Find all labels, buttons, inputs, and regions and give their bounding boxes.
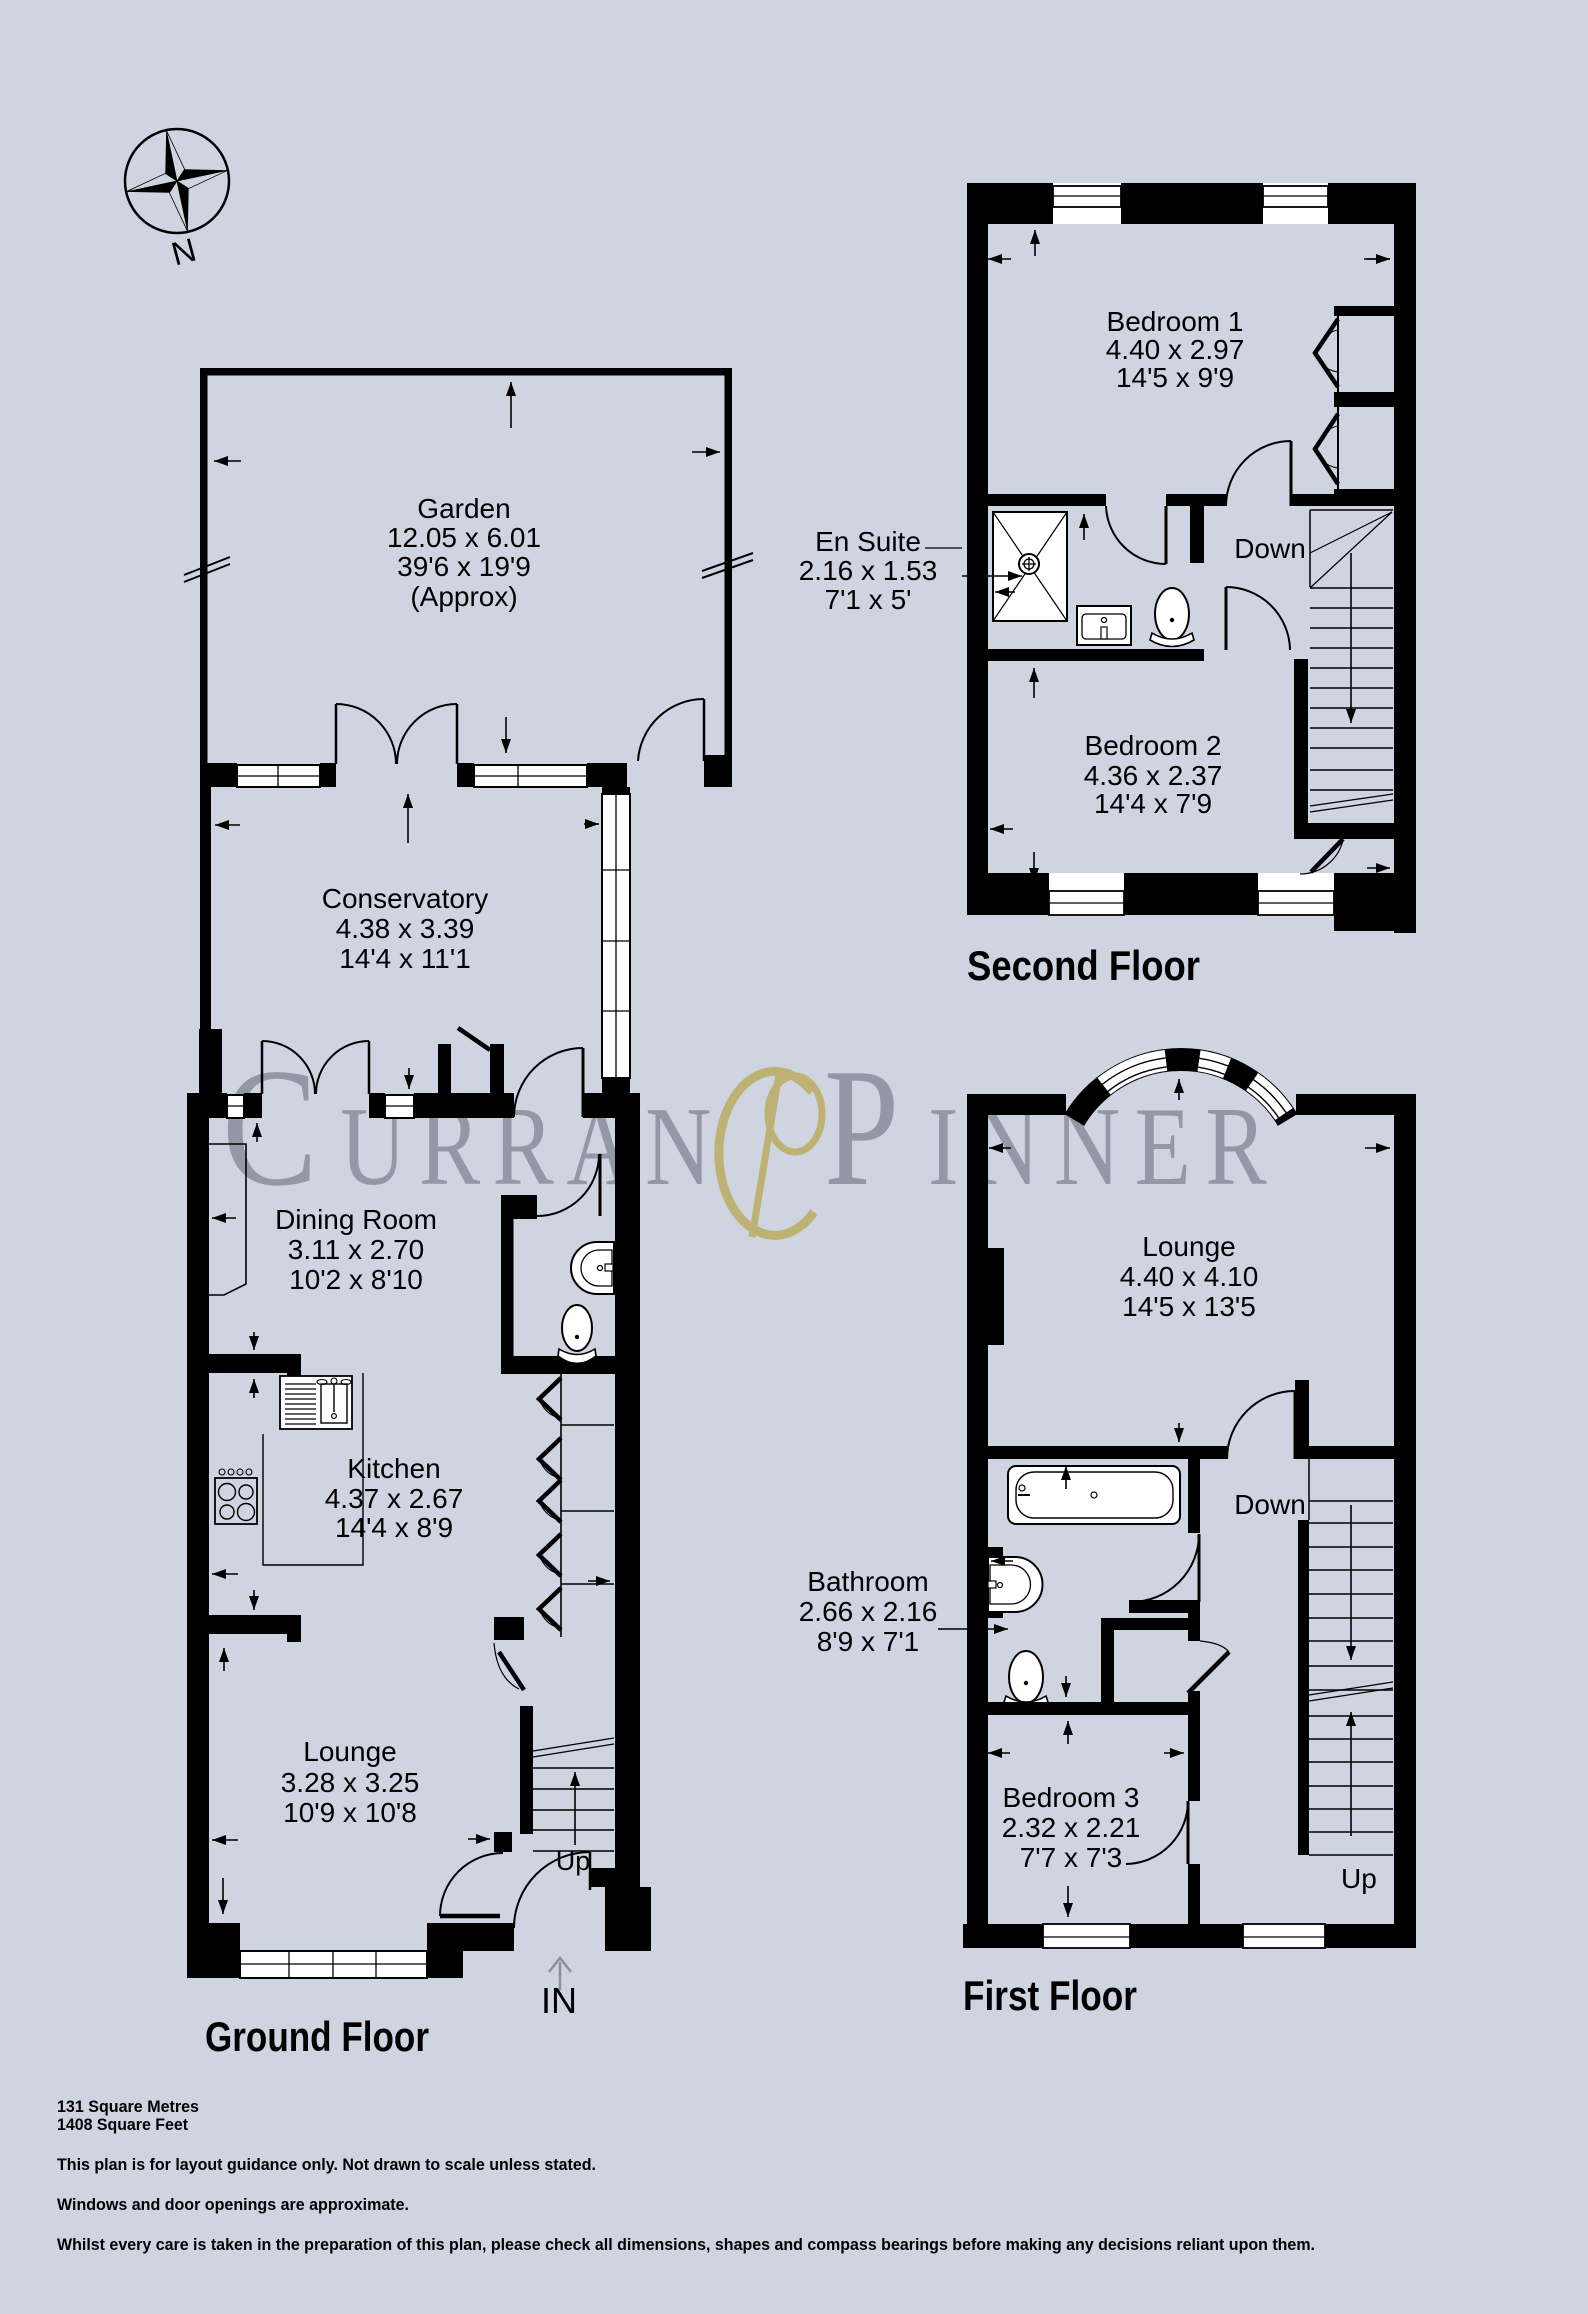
svg-text:Bedroom 2: Bedroom 2 [1085,730,1222,761]
svg-text:2.32 x 2.21: 2.32 x 2.21 [1002,1812,1141,1843]
svg-text:Ground Floor: Ground Floor [205,2013,429,2060]
svg-text:14'4 x 7'9: 14'4 x 7'9 [1094,788,1212,819]
svg-text:10'2 x 8'10: 10'2 x 8'10 [289,1264,423,1295]
svg-text:39'6 x 19'9: 39'6 x 19'9 [397,551,531,582]
svg-text:12.05 x 6.01: 12.05 x 6.01 [387,522,541,553]
svg-text:First Floor: First Floor [963,1972,1137,2019]
svg-text:7'1 x 5': 7'1 x 5' [825,584,912,615]
svg-text:Kitchen: Kitchen [347,1453,440,1484]
svg-text:P: P [824,1035,899,1222]
svg-text:Garden: Garden [417,493,510,524]
svg-text:8'9 x 7'1: 8'9 x 7'1 [817,1626,920,1657]
svg-text:Dining Room: Dining Room [275,1204,437,1235]
svg-text:4.36 x 2.37: 4.36 x 2.37 [1084,760,1223,791]
svg-text:Bedroom 3: Bedroom 3 [1003,1782,1140,1813]
svg-text:2.66 x 2.16: 2.66 x 2.16 [799,1596,938,1627]
svg-text:14'5 x 9'9: 14'5 x 9'9 [1116,362,1234,393]
svg-text:14'5 x 13'5: 14'5 x 13'5 [1122,1291,1256,1322]
svg-text:7'7 x 7'3: 7'7 x 7'3 [1020,1842,1123,1873]
svg-text:Up: Up [1341,1863,1377,1894]
svg-text:Lounge: Lounge [1142,1231,1235,1262]
svg-text:1408 Square Feet: 1408 Square Feet [57,2115,188,2134]
svg-text:2.16 x 1.53: 2.16 x 1.53 [799,555,938,586]
svg-text:4.40 x 2.97: 4.40 x 2.97 [1106,334,1245,365]
svg-text:Bathroom: Bathroom [807,1566,928,1597]
svg-text:Down: Down [1234,533,1306,564]
svg-text:131 Square Metres: 131 Square Metres [57,2097,199,2116]
svg-text:Second Floor: Second Floor [967,942,1200,989]
svg-text:10'9 x 10'8: 10'9 x 10'8 [283,1797,417,1828]
svg-text:14'4 x 8'9: 14'4 x 8'9 [335,1512,453,1543]
svg-text:Windows and door openings are: Windows and door openings are approximat… [57,2195,409,2214]
svg-text:4.38 x 3.39: 4.38 x 3.39 [336,913,475,944]
svg-text:IN: IN [541,1980,577,2021]
svg-text:Conservatory: Conservatory [322,883,489,914]
svg-text:Whilst every care is taken in: Whilst every care is taken in the prepar… [57,2235,1315,2254]
svg-text:3.11 x 2.70: 3.11 x 2.70 [288,1234,424,1265]
svg-text:(Approx): (Approx) [410,581,517,612]
svg-text:Down: Down [1234,1489,1306,1520]
svg-text:En Suite: En Suite [815,526,921,557]
svg-text:Lounge: Lounge [303,1736,396,1767]
svg-text:Up: Up [556,1846,591,1876]
svg-text:This plan is for layout guidan: This plan is for layout guidance only. N… [57,2155,596,2174]
svg-text:4.37 x 2.67: 4.37 x 2.67 [325,1483,464,1514]
svg-text:Bedroom 1: Bedroom 1 [1107,306,1244,337]
svg-text:4.40 x 4.10: 4.40 x 4.10 [1120,1261,1259,1292]
svg-text:14'4 x 11'1: 14'4 x 11'1 [339,943,471,974]
svg-text:3.28 x 3.25: 3.28 x 3.25 [281,1767,420,1798]
